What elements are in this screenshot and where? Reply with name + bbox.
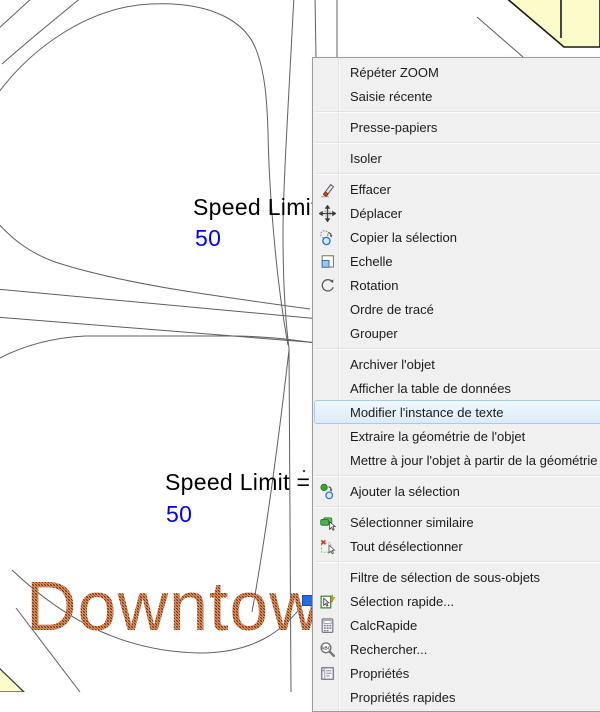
menu-item-grouper[interactable]: Grouper [314, 321, 600, 345]
menu-item-archiver-l-objet[interactable]: Archiver l'objet [314, 352, 600, 376]
menu-item-label: Filtre de sélection de sous-objets [350, 570, 540, 585]
deselect-all-icon [315, 537, 339, 555]
context-menu: Répéter ZOOMSaisie récentePresse-papiers… [312, 57, 600, 712]
empty-icon-gutter [315, 300, 339, 318]
menu-item-rotation[interactable]: Rotation [314, 273, 600, 297]
menu-item-label: Copier la sélection [350, 230, 457, 245]
properties-icon [315, 664, 339, 682]
parcel-yellow-topright [504, 0, 600, 47]
menu-item-echelle[interactable]: Echelle [314, 249, 600, 273]
empty-icon-gutter [315, 324, 339, 342]
menu-item-isoler[interactable]: Isoler [314, 146, 600, 170]
menu-item-label: Rechercher... [350, 642, 427, 657]
menu-item-label: Déplacer [350, 206, 402, 221]
menu-item-tout-deselectionner[interactable]: Tout désélectionner [314, 534, 600, 558]
menu-separator [315, 506, 600, 508]
menu-separator [315, 142, 600, 144]
menu-item-label: Effacer [350, 182, 391, 197]
copy-selection-icon [315, 228, 339, 246]
menu-separator [315, 111, 600, 113]
menu-item-label: Grouper [350, 326, 398, 341]
find-icon: ABC [315, 640, 339, 658]
svg-text:ABC: ABC [321, 645, 331, 650]
empty-icon-gutter [315, 118, 339, 136]
menu-item-saisie-recente[interactable]: Saisie récente [314, 84, 600, 108]
empty-icon-gutter [315, 568, 339, 586]
menu-item-label: Ajouter la sélection [350, 484, 460, 499]
menu-item-selection-rapide[interactable]: Sélection rapide... [314, 589, 600, 613]
menu-item-copier-la-selection[interactable]: Copier la sélection [314, 225, 600, 249]
menu-item-effacer[interactable]: Effacer [314, 177, 600, 201]
move-icon [315, 204, 339, 222]
menu-item-label: Propriétés [350, 666, 409, 681]
scale-icon [315, 252, 339, 270]
menu-item-label: Extraire la géométrie de l'objet [350, 429, 525, 444]
empty-icon-gutter [315, 63, 339, 81]
menu-item-mettre-a-jour-l-objet-a-partir-de-la-geometrie[interactable]: Mettre à jour l'objet à partir de la géo… [314, 448, 600, 472]
speed-limit-label-lower: Speed Limit = [165, 471, 310, 494]
parcel-yellow-bottomleft [0, 665, 24, 692]
menu-item-filtre-de-selection-de-sous-objets[interactable]: Filtre de sélection de sous-objets [314, 565, 600, 589]
menu-item-ajouter-la-selection[interactable]: Ajouter la sélection [314, 479, 600, 503]
menu-item-label: Mettre à jour l'objet à partir de la géo… [350, 453, 597, 468]
menu-separator [315, 561, 600, 563]
empty-icon-gutter [315, 451, 339, 469]
menu-item-extraire-la-geometrie-de-l-objet[interactable]: Extraire la géométrie de l'objet [314, 424, 600, 448]
empty-icon-gutter [315, 688, 339, 706]
quickcalc-icon [315, 616, 339, 634]
menu-item-proprietes-rapides[interactable]: Propriétés rapides [314, 685, 600, 709]
menu-item-label: Répéter ZOOM [350, 65, 439, 80]
speed-limit-value-upper: 50 [195, 227, 221, 250]
menu-item-label: CalcRapide [350, 618, 417, 633]
select-similar-icon [315, 513, 339, 531]
menu-item-label: Sélectionner similaire [350, 515, 474, 530]
downtown-text[interactable]: Downtown [26, 567, 361, 645]
rotate-icon [315, 276, 339, 294]
empty-icon-gutter [315, 379, 339, 397]
speed-limit-value-lower: 50 [166, 503, 192, 526]
menu-item-ordre-de-trace[interactable]: Ordre de tracé [314, 297, 600, 321]
menu-item-label: Modifier l'instance de texte [350, 405, 504, 420]
menu-item-proprietes[interactable]: Propriétés [314, 661, 600, 685]
menu-item-label: Archiver l'objet [350, 357, 435, 372]
menu-item-label: Ordre de tracé [350, 302, 434, 317]
menu-item-label: Presse-papiers [350, 120, 437, 135]
menu-item-repeter-zoom[interactable]: Répéter ZOOM [314, 60, 600, 84]
add-selection-icon [315, 482, 339, 500]
empty-icon-gutter [315, 87, 339, 105]
empty-icon-gutter [315, 355, 339, 373]
quick-select-icon [315, 592, 339, 610]
menu-item-label: Rotation [350, 278, 398, 293]
menu-item-deplacer[interactable]: Déplacer [314, 201, 600, 225]
empty-icon-gutter [315, 427, 339, 445]
menu-item-rechercher[interactable]: ABCRechercher... [314, 637, 600, 661]
menu-item-label: Tout désélectionner [350, 539, 463, 554]
menu-separator [315, 475, 600, 477]
menu-item-afficher-la-table-de-donnees[interactable]: Afficher la table de données [314, 376, 600, 400]
menu-separator [315, 173, 600, 175]
menu-item-label: Isoler [350, 151, 382, 166]
menu-item-presse-papiers[interactable]: Presse-papiers [314, 115, 600, 139]
menu-item-label: Sélection rapide... [350, 594, 454, 609]
menu-item-modifier-l-instance-de-texte[interactable]: Modifier l'instance de texte [314, 400, 600, 424]
menu-separator [315, 348, 600, 350]
menu-item-label: Afficher la table de données [350, 381, 511, 396]
menu-item-calcrapide[interactable]: CalcRapide [314, 613, 600, 637]
menu-item-selectionner-similaire[interactable]: Sélectionner similaire [314, 510, 600, 534]
eraser-icon [315, 180, 339, 198]
empty-icon-gutter [315, 403, 339, 421]
menu-item-label: Saisie récente [350, 89, 432, 104]
menu-item-label: Echelle [350, 254, 393, 269]
empty-icon-gutter [315, 149, 339, 167]
